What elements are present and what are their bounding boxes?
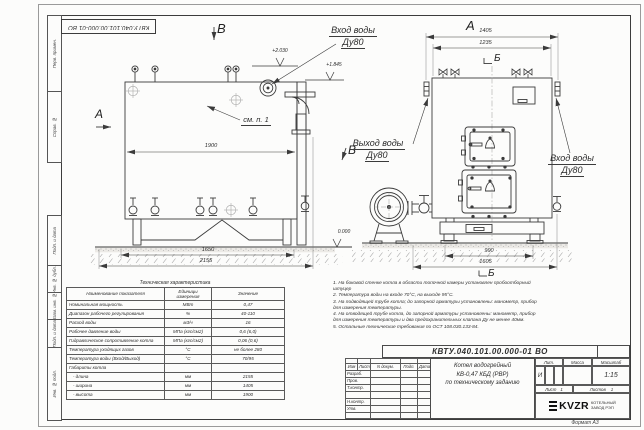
- lit-cell-3: [554, 366, 563, 385]
- lit-header: Лит.: [535, 358, 563, 366]
- sheets-cell: Листов 1: [573, 385, 630, 393]
- elevation-top: +2.030: [262, 48, 298, 54]
- sheets-label: Листов: [590, 387, 606, 392]
- elevation-ground: 0.000: [326, 229, 362, 235]
- dim-2155: 2155: [176, 258, 236, 264]
- dim-1605: 1605: [458, 259, 513, 265]
- sheet-label: Лист: [545, 387, 556, 392]
- view-marker-v-top: В: [217, 21, 226, 36]
- technical-notes: 1. На боковой стенке котла в области топ…: [333, 281, 541, 331]
- outlet-label-dn-text: Ду80: [365, 150, 390, 162]
- col-izm: Изм: [346, 364, 358, 371]
- note-line: 1. На боковой стенке котла в области топ…: [333, 281, 541, 293]
- top-doc-number-stamp: КВТУ.040.101.00.000-01 ВО: [61, 19, 156, 34]
- inlet-label-right-dn-text: Ду80: [560, 165, 585, 177]
- spec-table-block: Техническая характеристика Наименование …: [66, 280, 284, 400]
- margin-cell: Взам. инв. №: [47, 292, 62, 321]
- dim-1235: 1235: [458, 40, 513, 46]
- logo-cell: KVZR КОТЕЛЬНЫЙ ЗАВОД РЭП: [535, 393, 630, 419]
- lit-cell-2: [545, 366, 554, 385]
- product-title-cell: Котел водогрейный КВ-0,47 КБД (РВР) по т…: [430, 358, 535, 419]
- dim-1405: 1405: [458, 28, 513, 34]
- product-title-2: КВ-0,47 КБД (РВР): [431, 371, 534, 380]
- row-empty: [346, 392, 371, 399]
- margin-label: Взам. инв. №: [52, 293, 57, 320]
- mass-header: Масса: [563, 358, 592, 366]
- lit-value: И: [535, 366, 545, 385]
- row-prov: Пров.: [346, 378, 371, 385]
- note-line: 3. На подводящей трубе котла; до запорно…: [333, 300, 541, 312]
- inlet-label-right: Вход воды: [540, 153, 604, 165]
- outlet-label-text: Выход воды: [351, 138, 406, 150]
- inlet-label-top-dn-text: Ду80: [341, 37, 366, 49]
- spec-row: Габариты котла: [67, 364, 285, 373]
- sheet-cell: Лист 1: [535, 385, 573, 393]
- margin-column: Перв. примен. Справ. № Подп. и дата Инв.…: [47, 15, 61, 419]
- sheet-value: 1: [560, 387, 562, 392]
- sheets-value: 1: [611, 387, 613, 392]
- kvzr-logo-text: KVZR: [559, 400, 589, 412]
- spec-row: Температура воды (Вход/Выход)°С70/95: [67, 355, 285, 364]
- kvzr-logo: KVZR КОТЕЛЬНЫЙ ЗАВОД РЭП: [549, 400, 616, 412]
- spec-row: Рабочее давление водыМПа (кгс/см2)0,6 (6…: [67, 328, 285, 337]
- note-line: 5. Остальные технические требования по О…: [333, 325, 541, 331]
- row-nkontr: Н.контр.: [346, 399, 371, 406]
- col-dokum: N докум.: [371, 364, 401, 371]
- see-note-text: см. п. 1: [241, 115, 271, 126]
- spec-header-value: Значение: [212, 288, 285, 301]
- inlet-label-right-dn: Ду80: [552, 165, 592, 177]
- margin-cell: Подп. и дата: [47, 319, 62, 349]
- margin-label: Инв. № дубл.: [52, 266, 57, 293]
- signature-table: Изм Лист N докум. Подп. Дата Разраб. Про…: [345, 358, 431, 419]
- margin-cell: Справ. №: [47, 91, 62, 163]
- outlet-label: Выход воды: [342, 138, 414, 150]
- margin-label: Подп. и дата: [52, 320, 57, 348]
- title-block-doc-extra-cell: [597, 345, 630, 358]
- spec-header-name: Наименование показателя: [67, 288, 165, 301]
- spec-row: Температура уходящих газов°Сне более 280: [67, 346, 285, 355]
- product-title-3: по техническому заданию: [431, 379, 534, 388]
- view-marker-a-left: А: [95, 107, 103, 121]
- spec-row: - высотамм1900: [67, 391, 285, 400]
- margin-label: Справ. №: [52, 117, 57, 137]
- drawing-sheet: Перв. примен. Справ. № Подп. и дата Инв.…: [0, 0, 644, 430]
- spec-table-title: Техническая характеристика: [66, 280, 284, 286]
- row-utv: Утв.: [346, 406, 371, 413]
- row-razrab: Разраб.: [346, 371, 371, 378]
- see-note-ref: см. п. 1: [232, 115, 280, 126]
- inlet-label-top: Вход воды: [322, 25, 384, 37]
- margin-label: Инв. № подл.: [52, 370, 57, 398]
- product-title-1: Котел водогрейный: [431, 362, 534, 371]
- dim-990: 990: [464, 248, 514, 254]
- section-marker-b-top: Б: [494, 53, 501, 64]
- note-line: 4. На отводящей трубе котла, до запорной…: [333, 312, 541, 324]
- kvzr-logo-bars-icon: [549, 401, 557, 412]
- dim-1650: 1650: [178, 247, 238, 253]
- spec-table: Наименование показателя Единицы измерени…: [66, 287, 285, 400]
- margin-label: Подп. и дата: [52, 227, 57, 255]
- margin-cell: Инв. № подл.: [47, 347, 62, 421]
- spec-row: - ширинамм1405: [67, 382, 285, 391]
- spec-row: Гидравлическое сопротивление котлаМПа (к…: [67, 337, 285, 346]
- elevation-pipe: +1.845: [316, 62, 352, 68]
- section-marker-b-bottom: Б: [488, 268, 495, 279]
- spec-row: Диапазон рабочего регулирования%40-110: [67, 310, 285, 319]
- mass-value: [563, 366, 592, 385]
- scale-value: 1:15: [592, 366, 630, 385]
- title-block-doc-number: КВТУ.040.101.00.000-01 ВО: [382, 345, 598, 358]
- outlet-label-dn: Ду80: [356, 150, 398, 162]
- margin-cell: Инв. № дубл.: [47, 265, 62, 294]
- top-doc-number: КВТУ.040.101.00.000-01 ВО: [68, 24, 149, 30]
- col-podp: Подп.: [401, 364, 418, 371]
- title-block: КВТУ.040.101.00.000-01 ВО Изм Лист N док…: [345, 345, 630, 419]
- col-list: Лист: [358, 364, 371, 371]
- inlet-label-top-dn: Ду80: [336, 37, 370, 49]
- inlet-label-right-text: Вход воды: [548, 153, 596, 165]
- margin-cell: Перв. примен.: [47, 15, 62, 93]
- row-tkontr: Т.контр.: [346, 385, 371, 392]
- spec-row: Расход водым3/ч16: [67, 319, 285, 328]
- format-label: Формат А3: [540, 420, 630, 426]
- inlet-label-top-text: Вход воды: [329, 25, 377, 37]
- scale-header: Масштаб: [592, 358, 630, 366]
- spec-row: - длинамм2155: [67, 373, 285, 382]
- spec-header-units: Единицы измерения: [165, 288, 212, 301]
- kvzr-logo-caption: КОТЕЛЬНЫЙ ЗАВОД РЭП: [591, 401, 616, 411]
- spec-row: Номинальная мощностьМВт0,47: [67, 301, 285, 310]
- margin-cell: Подп. и дата: [47, 215, 62, 267]
- col-data: Дата: [418, 364, 431, 371]
- spec-header-row: Наименование показателя Единицы измерени…: [67, 288, 285, 301]
- dim-1900: 1900: [181, 143, 241, 149]
- margin-label: Перв. примен.: [52, 39, 57, 68]
